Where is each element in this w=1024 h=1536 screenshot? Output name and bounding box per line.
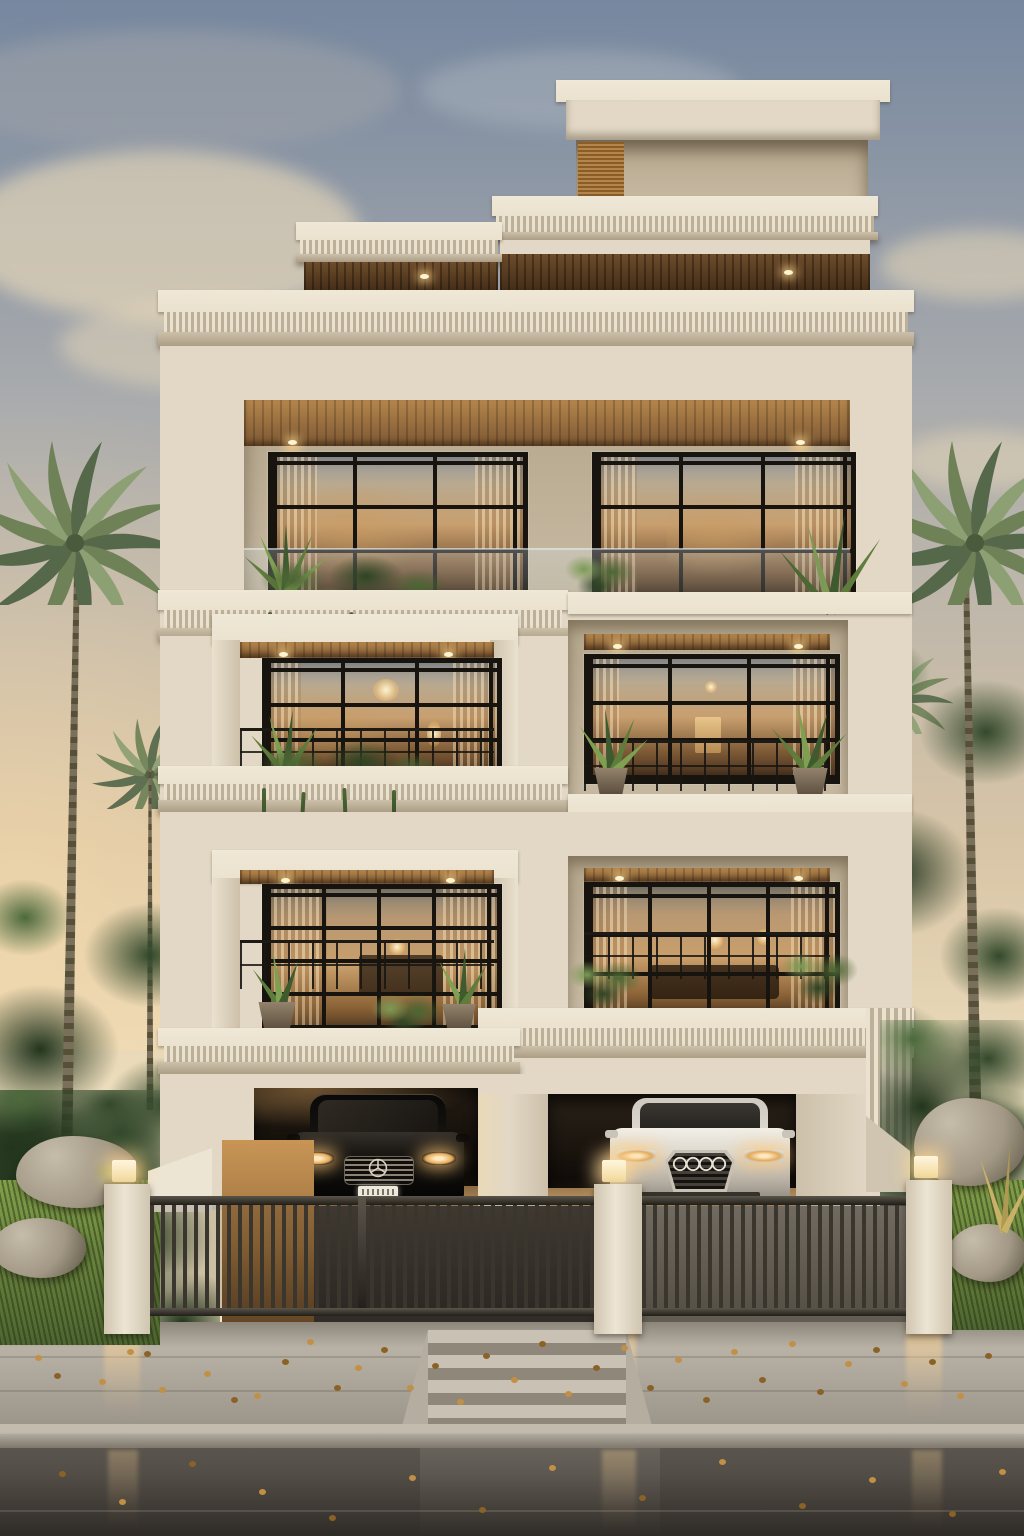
bay-downlight <box>613 644 622 649</box>
garage-middle-pier <box>478 1094 548 1210</box>
side-mirror <box>456 1134 469 1142</box>
mid-left-architrave <box>212 614 518 644</box>
kerb-face <box>0 1434 1024 1448</box>
headlight <box>744 1150 784 1162</box>
rock-right-small <box>948 1224 1024 1282</box>
lamp-reflection <box>906 1330 942 1418</box>
pillar-lamp <box>112 1160 136 1182</box>
corner-shrub <box>560 946 650 1010</box>
gate-pillar-center <box>594 1184 642 1334</box>
rooftop-bulkhead-cap <box>556 80 890 102</box>
balcony-downlight <box>796 440 805 445</box>
windshield <box>318 1100 438 1134</box>
right-parapet-wall <box>500 240 870 254</box>
mid-left-ceiling <box>240 642 494 658</box>
right-parapet-lip <box>492 232 878 240</box>
bay-downlight <box>615 876 624 881</box>
left-parapet-flute <box>300 240 498 254</box>
garage-lintel-left-lip <box>158 1062 520 1074</box>
bay-downlight <box>281 878 290 883</box>
ledge2-right-band <box>568 794 912 814</box>
garage-lintel-left-flute <box>164 1046 514 1062</box>
lamp-reflection-road <box>602 1450 636 1532</box>
gate-left <box>150 1205 594 1311</box>
rooftop-louvre-screen <box>578 142 624 204</box>
main-cornice-flute <box>164 312 908 332</box>
bay-downlight <box>279 652 288 657</box>
rock-left-small <box>0 1218 86 1278</box>
gate-left-stile <box>358 1196 366 1314</box>
soffit-downlight <box>784 270 793 275</box>
rooftop-bulkhead-fascia <box>566 100 880 140</box>
bay-downlight <box>794 644 803 649</box>
right-parapet-flute <box>496 216 874 232</box>
bay-downlight <box>794 876 803 881</box>
ledge2-flute <box>164 784 562 800</box>
mercedes-car <box>292 1094 464 1204</box>
balcony-downlight <box>288 440 297 445</box>
garage-lintel-right-lip <box>478 1046 914 1058</box>
right-parapet-cornice <box>492 196 878 216</box>
pillar-lamp <box>602 1160 626 1182</box>
low-left-ceiling <box>240 870 494 884</box>
gate-left-top-rail <box>150 1196 594 1205</box>
bay-downlight <box>446 878 455 883</box>
ledge1-right-band <box>568 592 912 614</box>
left-parapet-lip <box>296 254 502 262</box>
main-cornice-slab <box>158 290 914 312</box>
mercedes-star-icon <box>368 1158 388 1178</box>
balcony-agave <box>768 696 852 774</box>
soffit-downlight <box>420 274 429 279</box>
ledge2-lip <box>158 800 568 812</box>
pillar-lamp <box>914 1156 938 1178</box>
main-cornice-lip <box>158 332 914 346</box>
ledge2-slab <box>158 766 568 784</box>
top-balcony-ceiling <box>244 400 850 446</box>
left-parapet-cornice <box>296 222 502 240</box>
gate-pillar-right <box>906 1180 952 1334</box>
road <box>0 1448 1024 1536</box>
gate-right <box>642 1205 906 1311</box>
potted-agave <box>246 944 316 1008</box>
scene-canvas <box>0 0 1024 1536</box>
garage-lintel-right-flute <box>484 1028 908 1046</box>
corner-shrub <box>772 934 868 1006</box>
low-left-jamb <box>212 878 240 1036</box>
gate-left-bottom-rail <box>150 1308 594 1316</box>
kerb <box>0 1424 1024 1434</box>
gate-right-top-rail <box>642 1196 906 1205</box>
fallen-leaves-road <box>0 1452 5 1456</box>
bay-downlight <box>444 652 453 657</box>
garage-right-pier <box>796 1094 870 1210</box>
right-parapet-soffit <box>500 254 870 294</box>
backlit-agave <box>982 1136 1024 1232</box>
entry-steps <box>428 1330 626 1426</box>
balcony-agave <box>572 700 652 774</box>
garage-lintel-right-slab <box>478 1008 914 1028</box>
lamp-reflection-road <box>108 1450 138 1530</box>
lamp-reflection-road <box>912 1450 942 1530</box>
potted-agave <box>430 940 496 1006</box>
audi-rings-icon <box>672 1156 728 1172</box>
gate-right-bottom-rail <box>642 1308 906 1316</box>
gate-pillar-left <box>104 1184 150 1334</box>
side-mirror <box>782 1130 795 1138</box>
headlight <box>422 1152 456 1165</box>
side-mirror <box>605 1130 618 1138</box>
ledge1-slab <box>158 590 568 610</box>
garage-lintel-left-slab <box>158 1028 520 1046</box>
